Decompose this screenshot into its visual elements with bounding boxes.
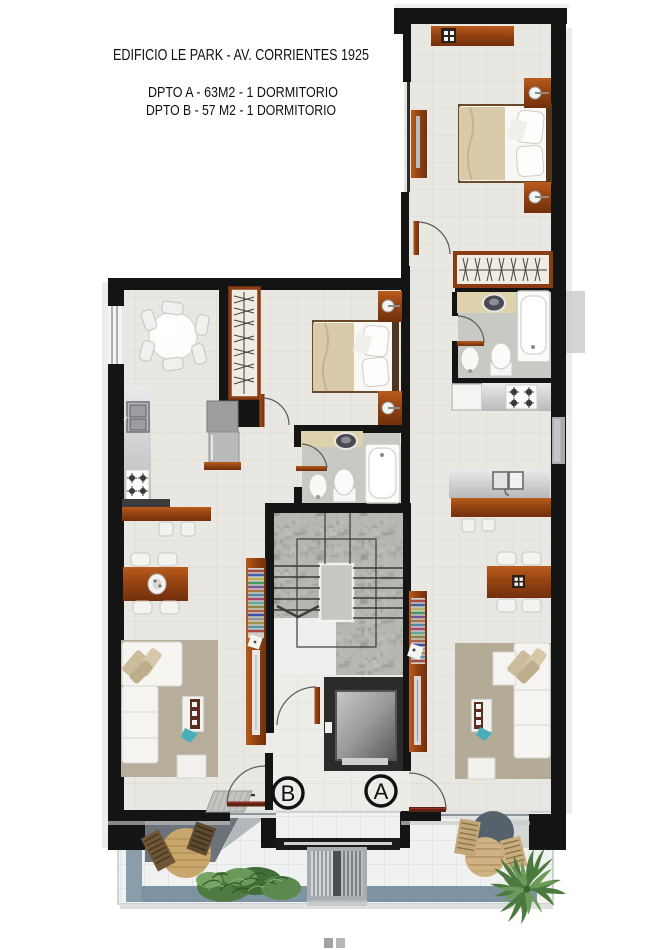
svg-text:B: B bbox=[281, 781, 296, 806]
svg-text:A: A bbox=[374, 779, 389, 804]
svg-text:EDIFICIO LE PARK - AV. CORRIEN: EDIFICIO LE PARK - AV. CORRIENTES 1925 bbox=[113, 47, 369, 64]
svg-text:DPTO B - 57 M2 - 1 DORMITORIO: DPTO B - 57 M2 - 1 DORMITORIO bbox=[146, 102, 336, 119]
svg-text:DPTO A - 63M2 - 1 DORMITORIO: DPTO A - 63M2 - 1 DORMITORIO bbox=[148, 84, 338, 101]
